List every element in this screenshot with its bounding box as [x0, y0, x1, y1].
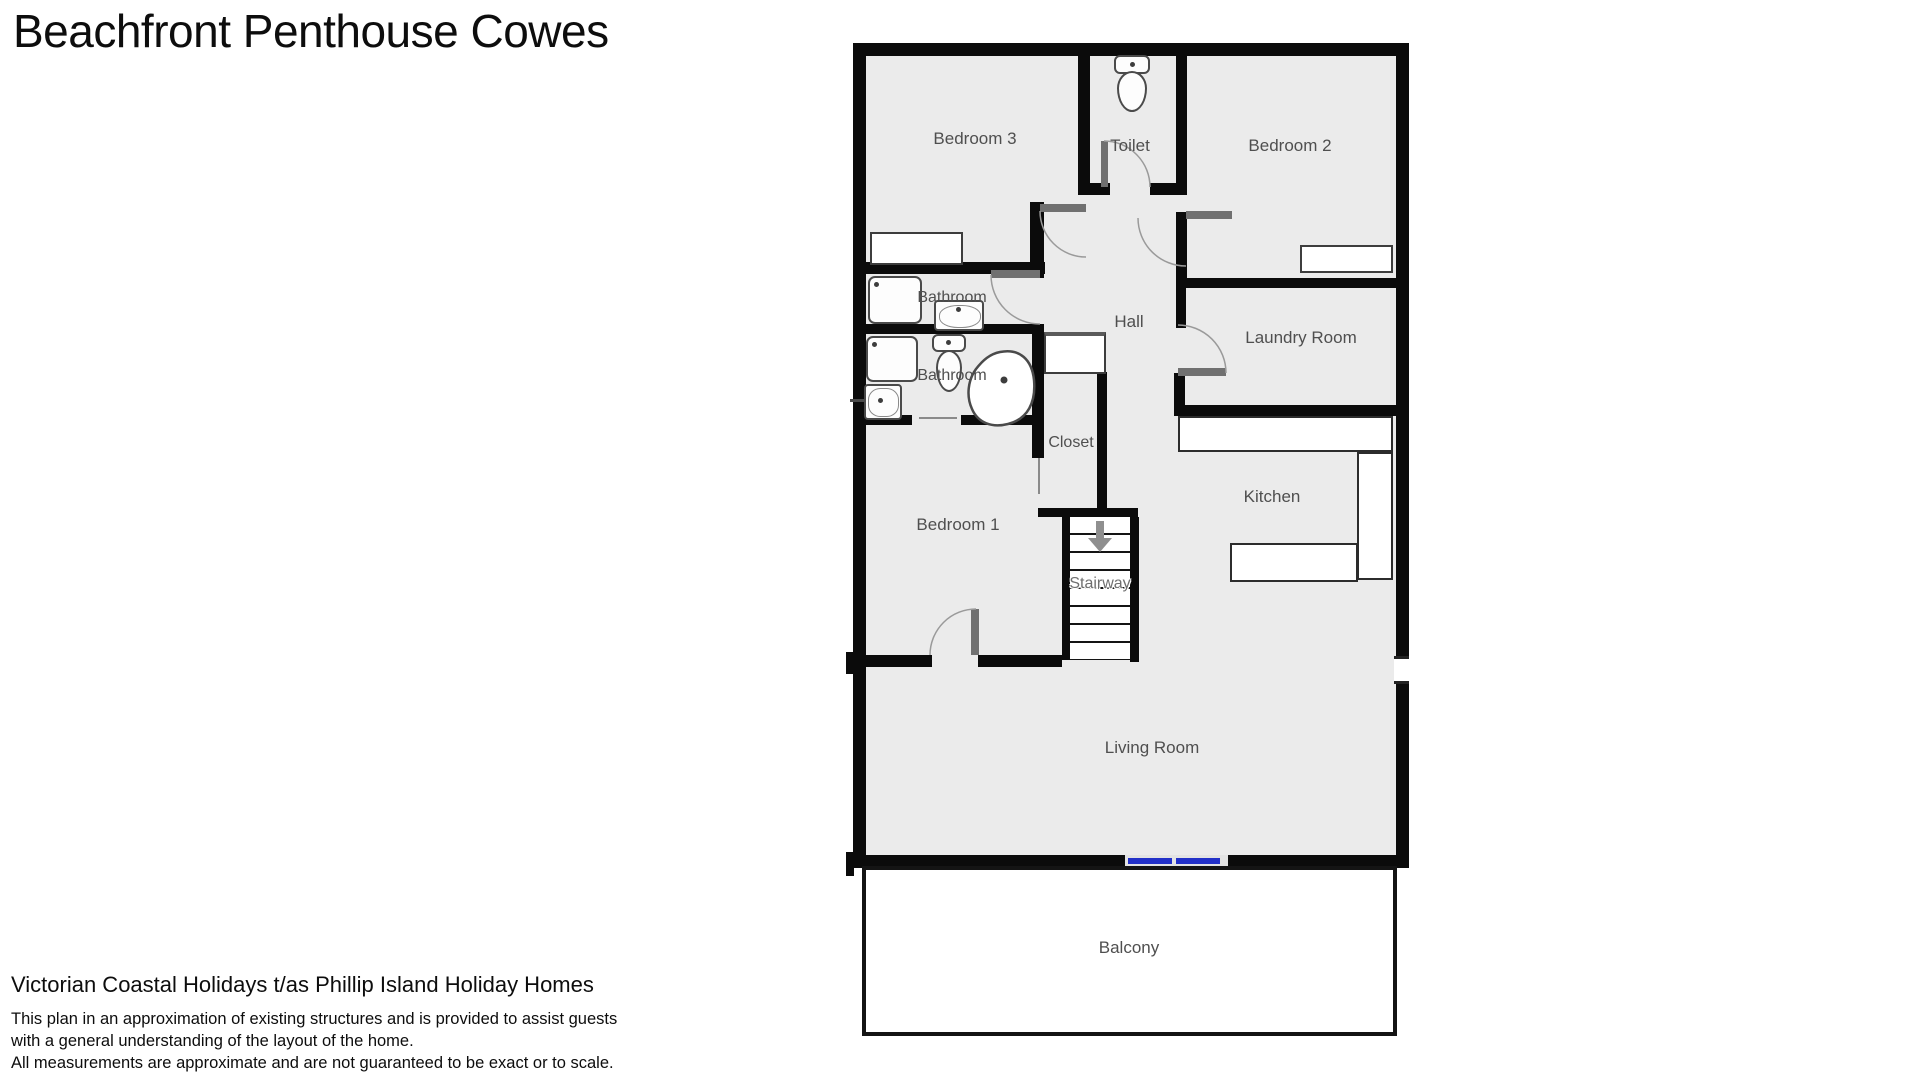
toilet-button-icon [1130, 62, 1135, 67]
room-label-bathroom1: Bathroom [917, 289, 986, 307]
door-leaf-bedroom3 [1040, 204, 1086, 212]
footer-disclaimer-line1: This plan in an approximation of existin… [11, 1008, 617, 1030]
door-leaf-toilet [1101, 141, 1108, 187]
room-label-bedroom2: Bedroom 2 [1248, 136, 1331, 156]
sliding-door-left [1128, 858, 1172, 864]
door-leaf-bedroom2 [1186, 211, 1232, 219]
room-label-hall: Hall [1114, 312, 1143, 332]
wardrobe-bedroom3 [870, 232, 963, 265]
wall-toilet-bedroom2 [1176, 55, 1187, 183]
room-label-balcony: Balcony [1099, 938, 1159, 958]
wall-nub-left-lower [846, 852, 854, 876]
room-label-kitchen: Kitchen [1244, 487, 1301, 507]
footer-heading: Victorian Coastal Holidays t/as Phillip … [11, 972, 617, 998]
outer-wall-right [1396, 43, 1409, 868]
page-title: Beachfront Penthouse Cowes [13, 4, 609, 58]
room-label-bedroom3: Bedroom 3 [933, 129, 1016, 149]
wall-bedroom1-south-right [978, 655, 1062, 667]
outer-wall-left [853, 43, 866, 868]
sink-basin-icon [868, 388, 899, 417]
wall-laundry-south [1174, 405, 1409, 416]
door-leaf-laundry [1178, 368, 1226, 376]
wall-closet-east [1097, 372, 1107, 508]
kitchen-counter-east [1357, 452, 1393, 580]
sink-tap-icon [956, 307, 961, 312]
window-right-wall [1394, 656, 1409, 684]
door-leaf-bathroom1 [991, 270, 1040, 278]
stairs-down-arrowhead-icon [1088, 538, 1112, 552]
wall-bedroom3-toilet [1078, 55, 1090, 190]
room-label-living: Living Room [1105, 738, 1200, 758]
wall-laundry-north [1176, 278, 1409, 288]
wall-bedroom2-west-lower [1176, 212, 1187, 288]
room-label-stairway: Stairway [1069, 575, 1130, 593]
room-label-bathroom2: Bathroom [917, 367, 986, 385]
wardrobe-bedroom2 [1300, 245, 1393, 273]
wall-stair-right [1130, 517, 1139, 662]
sink-spout-icon [850, 399, 866, 402]
wall-bedroom1-south-left [853, 655, 932, 667]
room-label-bedroom1: Bedroom 1 [916, 515, 999, 535]
toilet-button-icon [946, 340, 951, 345]
wall-laundry-west-upper [1176, 288, 1186, 328]
kitchen-island [1230, 543, 1358, 582]
page: Beachfront Penthouse Cowes [0, 0, 1920, 1080]
sliding-door-right [1176, 858, 1220, 864]
footer-disclaimer-line2: with a general understanding of the layo… [11, 1030, 617, 1052]
door-line-bathroom2 [919, 417, 957, 419]
footer-disclaimer-line3: All measurements are approximate and are… [11, 1052, 617, 1074]
door-line-closet [1038, 458, 1040, 494]
door-leaf-bedroom1 [971, 609, 979, 655]
sink-tap-icon [878, 398, 883, 403]
hall-cupboard [1044, 332, 1106, 374]
room-label-toilet: Toilet [1110, 136, 1150, 156]
wall-stair-top [1038, 508, 1138, 517]
kitchen-counter-north [1178, 416, 1393, 452]
room-label-laundry: Laundry Room [1245, 328, 1357, 348]
wall-bathroom2-east [1032, 334, 1044, 458]
room-label-closet: Closet [1048, 434, 1093, 452]
footer: Victorian Coastal Holidays t/as Phillip … [11, 972, 617, 1074]
wall-toilet-stub-right [1150, 183, 1187, 195]
shower-drain-icon [872, 342, 877, 347]
shower-drain-icon [874, 282, 879, 287]
stairs-down-arrow-icon [1096, 521, 1104, 539]
wall-bathroom2-south-right [961, 415, 1044, 425]
